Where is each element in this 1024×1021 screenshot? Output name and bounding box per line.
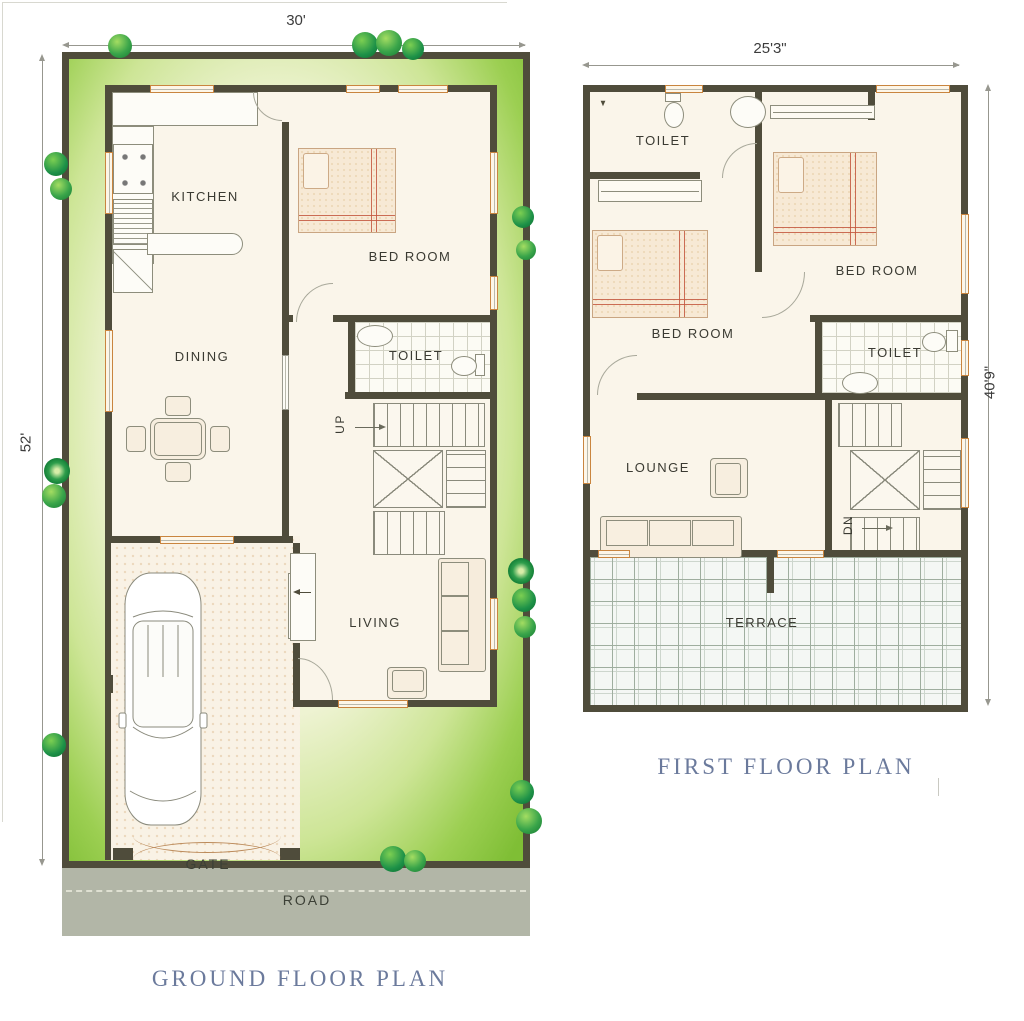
washbasin-icon <box>730 96 766 128</box>
wall-bedroom-bottom <box>333 315 497 322</box>
lounge-label: LOUNGE <box>598 460 718 475</box>
stairs-landing <box>373 450 443 508</box>
stairs-lower-flight <box>850 517 920 553</box>
ground-floor-title: GROUND FLOOR PLAN <box>140 966 460 992</box>
floor-plan-canvas: UP <box>0 0 1024 1021</box>
frame-line <box>938 778 939 796</box>
stairs-side-flight <box>446 450 486 508</box>
road-label: ROAD <box>247 892 367 908</box>
tree-icon <box>42 733 66 757</box>
kitchen-sink-icon <box>113 249 153 293</box>
toilet-bowl-icon <box>664 102 684 128</box>
tree-icon <box>44 458 70 484</box>
dim-arrow-icon <box>62 42 69 48</box>
door-arc <box>722 143 757 178</box>
dining-label: DINING <box>142 349 262 364</box>
tree-icon <box>516 240 536 260</box>
plot-height-dimension: 52' <box>18 425 35 461</box>
kitchen-label: KITCHEN <box>145 189 265 204</box>
stairs-landing <box>850 450 920 510</box>
stairs-down-label: DN <box>841 511 855 539</box>
tree-icon <box>108 34 132 58</box>
house-height-dimension: 40'9" <box>982 357 999 409</box>
wall-bedroom-bottom <box>282 315 293 322</box>
main-door <box>290 553 316 641</box>
toilet-bowl-icon <box>922 332 946 352</box>
tree-icon <box>376 30 402 56</box>
dim-arrow-icon <box>985 84 991 91</box>
terrace-label: TERRACE <box>702 615 822 630</box>
wall-toilet-left <box>348 322 355 392</box>
frame-line <box>2 2 507 3</box>
tree-icon <box>516 808 542 834</box>
kitchen-counter-top <box>112 92 258 126</box>
dining-table-icon <box>150 418 206 460</box>
window <box>490 152 498 214</box>
window <box>583 436 591 484</box>
gate-post <box>113 848 133 860</box>
ground-floor-plot: UP <box>62 52 530 868</box>
toilet-label: TOILET <box>603 133 723 148</box>
window <box>338 700 408 708</box>
first-floor-title: FIRST FLOOR PLAN <box>636 754 936 780</box>
toilet-bowl-icon <box>451 356 477 376</box>
sofa-icon <box>438 558 486 672</box>
wall-toilet-bottom <box>590 172 700 179</box>
gate-post <box>280 848 300 860</box>
gate-label: GATE <box>170 856 246 872</box>
frame-line <box>2 2 3 822</box>
internal-window <box>282 355 289 410</box>
dining-chair <box>165 396 191 416</box>
window <box>105 152 113 214</box>
up-arrow-line <box>355 427 379 428</box>
window <box>665 85 703 93</box>
window <box>961 214 969 294</box>
living-label: LIVING <box>315 615 435 630</box>
wall-partition <box>282 410 289 543</box>
dining-chair <box>165 462 191 482</box>
tree-icon <box>44 152 68 176</box>
door-arc <box>597 355 637 395</box>
window <box>398 85 448 93</box>
dn-arrow-line <box>862 528 886 529</box>
dim-arrow-icon <box>953 62 960 68</box>
dim-arrow-icon <box>519 42 526 48</box>
bed-icon <box>298 148 396 233</box>
dim-arrow-icon <box>985 699 991 706</box>
kitchen-peninsula-counter <box>147 233 243 255</box>
porch-window <box>160 536 234 544</box>
stairs-lower-flight <box>373 511 445 555</box>
stairs-side-flight <box>923 450 961 510</box>
window <box>346 85 380 93</box>
dining-chair <box>210 426 230 452</box>
dimension-line-horizontal <box>587 65 959 66</box>
tree-icon <box>380 846 406 872</box>
tree-icon <box>50 178 72 200</box>
bed-icon <box>592 230 708 318</box>
dimension-line-horizontal <box>67 45 525 46</box>
armchair-icon <box>710 458 748 498</box>
tree-icon <box>42 484 66 508</box>
car-icon <box>117 565 209 833</box>
tree-icon <box>512 588 536 612</box>
wall-stairs-left <box>825 400 832 550</box>
plot-width-dimension: 30' <box>246 12 346 29</box>
wall-mid-bottom <box>637 393 961 400</box>
window <box>777 550 824 558</box>
terrace-floor <box>590 557 961 705</box>
stairs-up-label: UP <box>333 409 347 439</box>
tree-icon <box>514 616 536 638</box>
armchair-icon <box>387 667 427 699</box>
stove-icon <box>113 144 153 194</box>
tree-icon <box>508 558 534 584</box>
wardrobe-icon <box>598 180 702 202</box>
up-arrow-icon <box>379 424 386 430</box>
window <box>490 276 498 310</box>
tree-icon <box>404 850 426 872</box>
first-floor-house: DN TOILET BED ROOM BED ROOM TOILET LOUNG… <box>583 85 968 712</box>
house-width-dimension: 25'3" <box>720 40 820 57</box>
stairs-upper-flight <box>838 403 902 447</box>
wall-terrace-stub <box>767 557 774 593</box>
stairs-upper-flight <box>373 403 485 447</box>
tree-icon <box>510 780 534 804</box>
wall-porch-left <box>105 536 111 860</box>
bed-icon <box>773 152 877 246</box>
window <box>961 340 969 376</box>
dining-chair <box>126 426 146 452</box>
window <box>490 598 498 650</box>
window <box>961 438 969 508</box>
toilet-tank-icon <box>946 330 958 352</box>
window <box>598 550 630 558</box>
dim-arrow-icon <box>39 54 45 61</box>
wardrobe-icon <box>770 105 875 119</box>
wall-toilet-bottom <box>345 392 497 399</box>
bedroom-label: BED ROOM <box>350 249 470 264</box>
porch-post <box>105 675 113 693</box>
window <box>150 85 214 93</box>
window <box>105 330 113 412</box>
washbasin-icon <box>357 325 393 347</box>
door-arc <box>762 272 805 318</box>
tree-icon <box>402 38 424 60</box>
shower-icon <box>601 101 606 107</box>
tree-icon <box>512 206 534 228</box>
wall-bedroom-bottom <box>810 315 961 322</box>
road: ROAD <box>62 868 530 936</box>
washbasin-icon <box>842 372 878 394</box>
dn-arrow-icon <box>886 525 893 531</box>
dim-arrow-icon <box>582 62 589 68</box>
bedroom-label: BED ROOM <box>633 326 753 341</box>
toilet-tank-icon <box>665 93 681 102</box>
wall-toilet-left <box>815 322 822 393</box>
bedroom-label: BED ROOM <box>817 263 937 278</box>
tree-icon <box>352 32 378 58</box>
window <box>876 85 950 93</box>
dim-arrow-icon <box>39 859 45 866</box>
